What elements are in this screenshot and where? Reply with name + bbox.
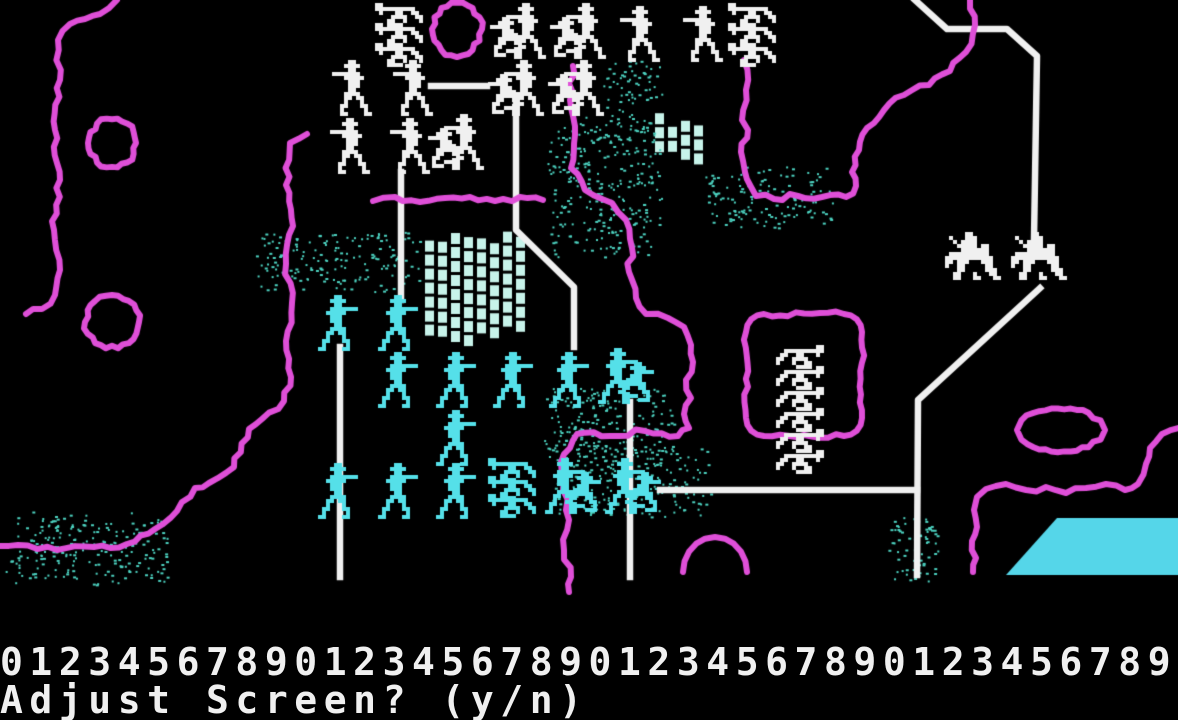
coordinate-ruler: 0123456789012345678901234567890123456789 xyxy=(0,643,1177,681)
battle-map-canvas xyxy=(0,0,1178,720)
game-screen: 0123456789012345678901234567890123456789… xyxy=(0,0,1178,720)
adjust-screen-prompt[interactable]: Adjust Screen? (y/n) xyxy=(0,681,589,719)
